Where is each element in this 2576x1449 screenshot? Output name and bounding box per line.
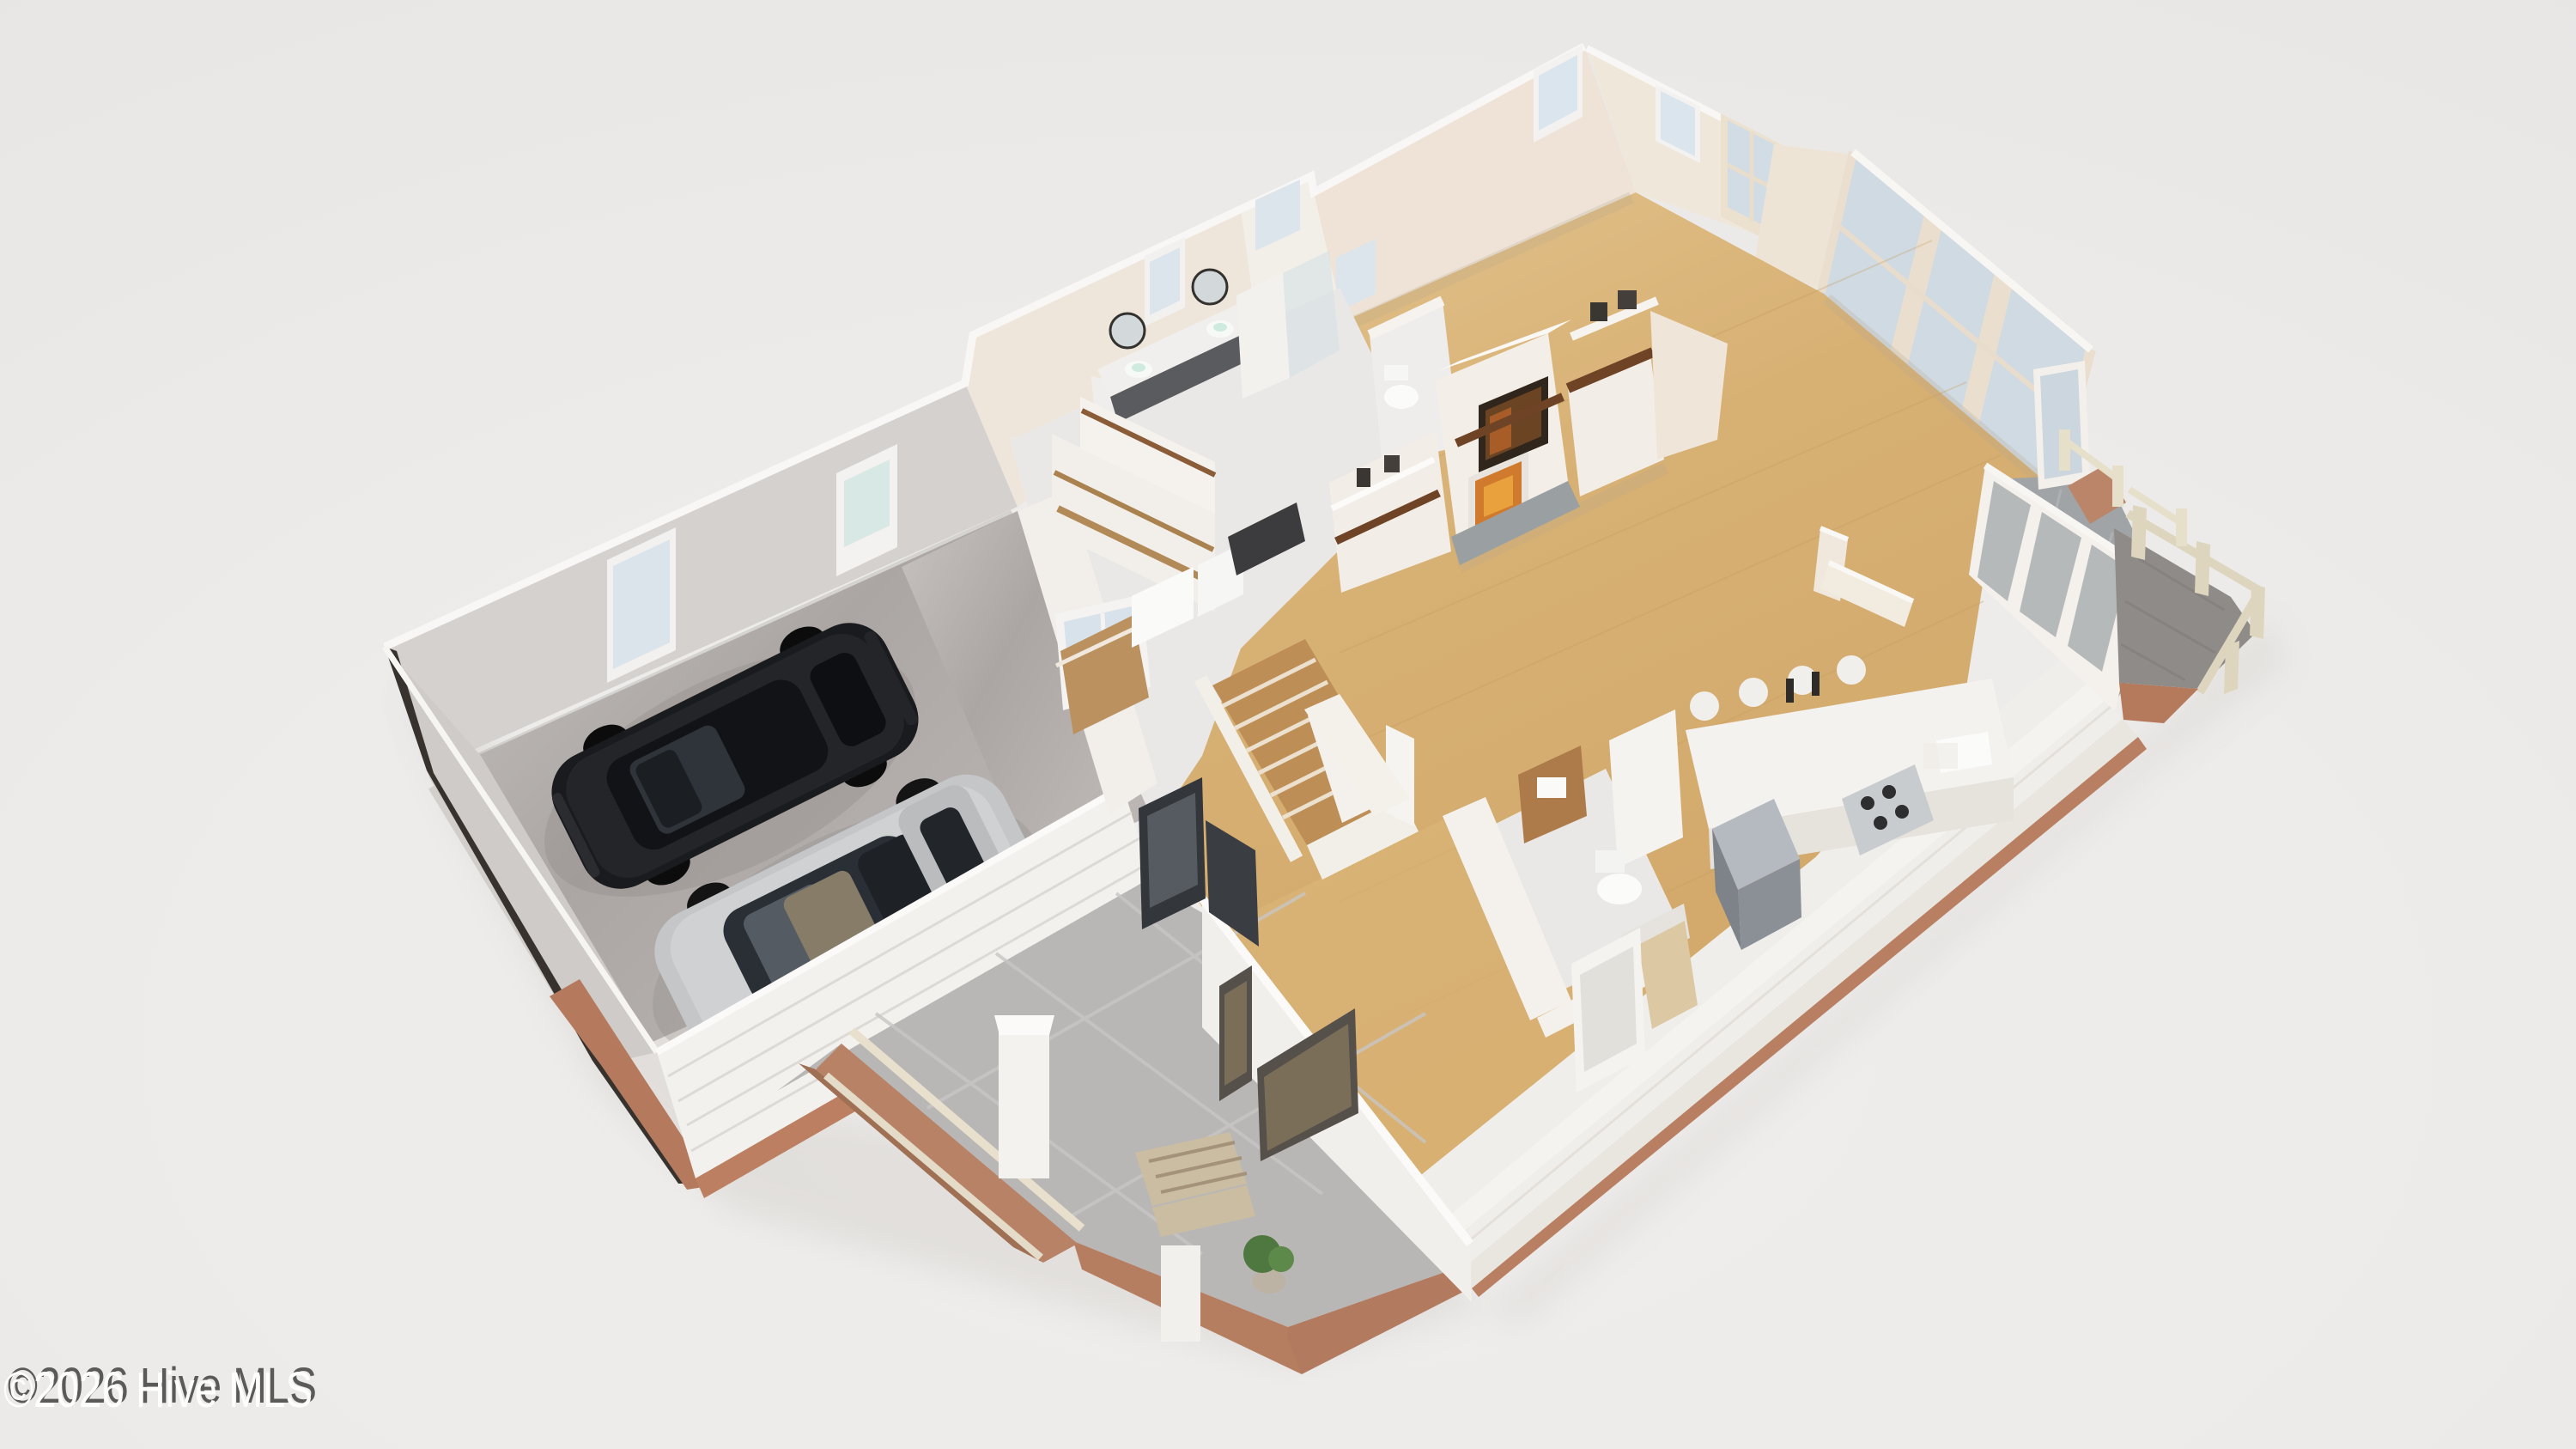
svg-text:©2026 Hive MLS: ©2026 Hive MLS: [3, 1363, 313, 1419]
